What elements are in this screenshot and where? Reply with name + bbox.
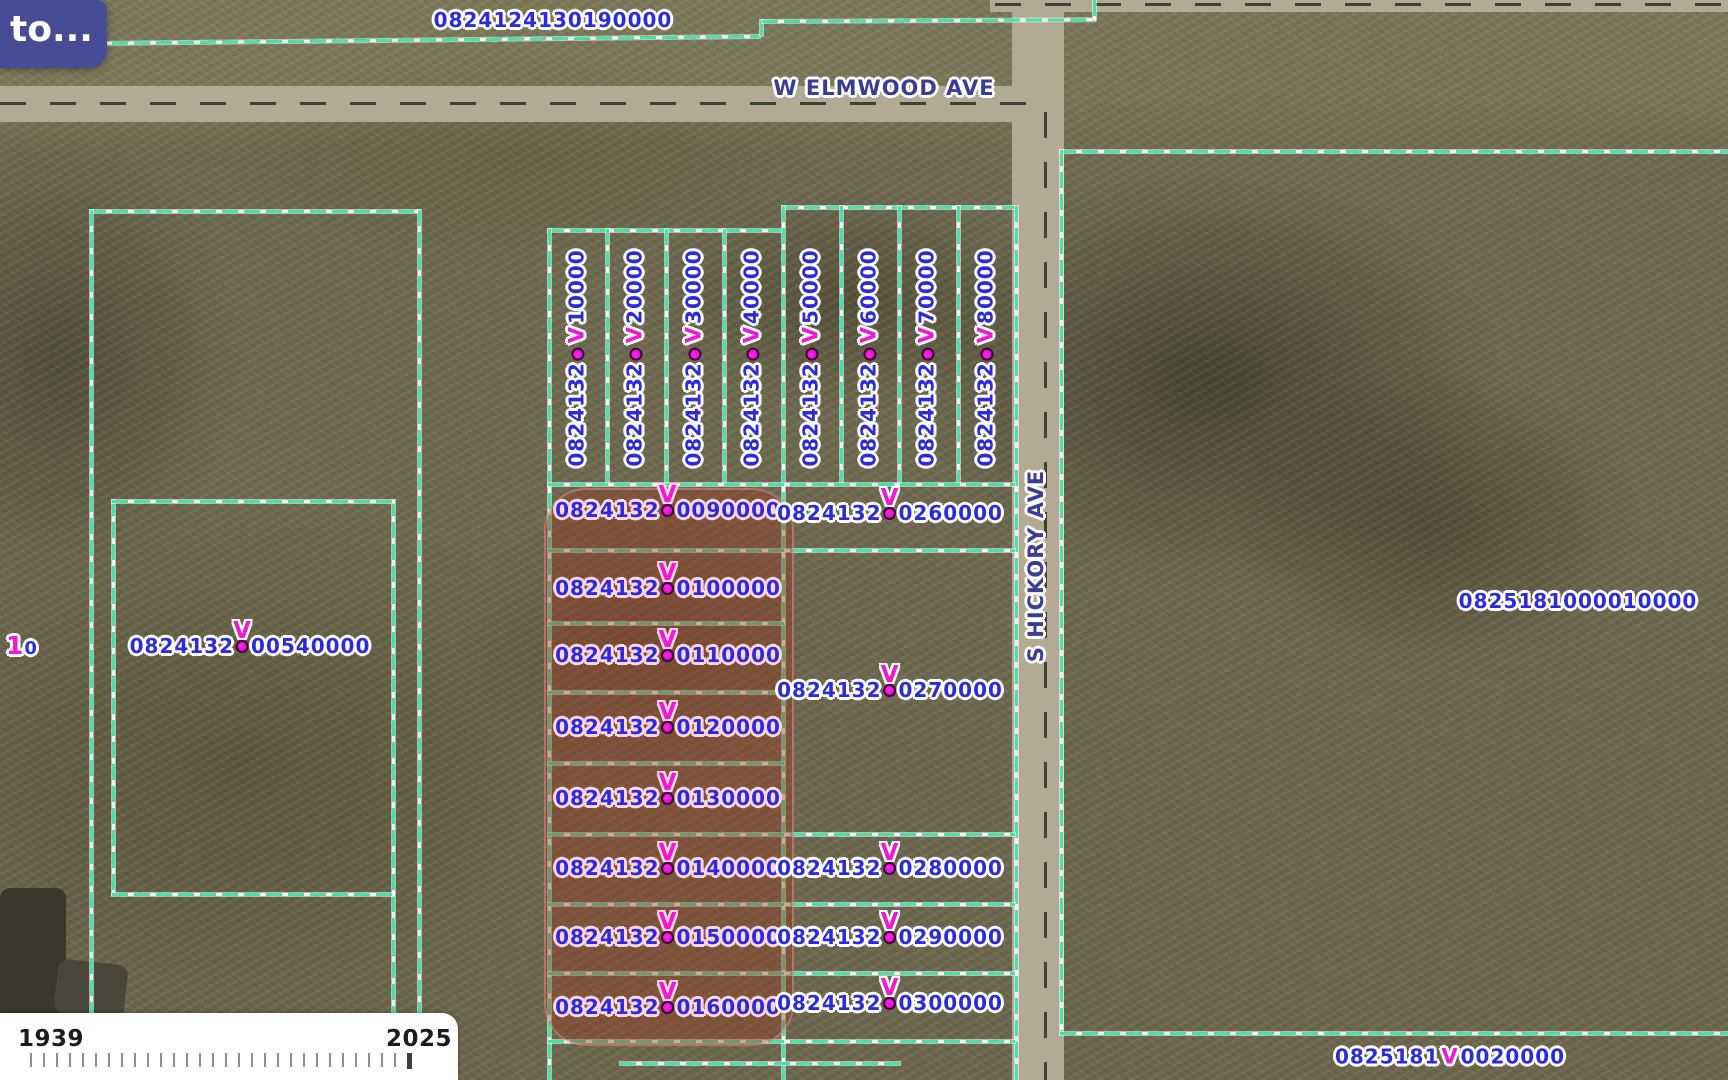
timeline-tick (394, 1053, 396, 1067)
parcel-dot-icon (236, 640, 249, 653)
parcel-point-marker: V (661, 648, 676, 663)
timeline-tick (355, 1053, 357, 1067)
parcel-boundary-line (1060, 150, 1728, 153)
parcel-dot-icon (662, 582, 675, 595)
parcel-dot-icon (662, 1001, 675, 1014)
parcel-boundary-line (112, 500, 394, 503)
parcel-label-vertical: 0824132V70000 (915, 249, 938, 466)
timeline-tick (316, 1053, 318, 1067)
timeline-tick (56, 1053, 58, 1067)
timeline-tick (342, 1053, 344, 1067)
parcel-boundary-line (418, 210, 421, 1035)
parcel-dot-icon (805, 347, 818, 360)
vacant-marker-icon: V (681, 326, 705, 343)
vacant-marker-icon: V (798, 326, 822, 343)
parcel-dot-icon (863, 347, 876, 360)
parcel-dot-icon (662, 504, 675, 517)
timeline-tick (290, 1053, 292, 1067)
timeline-tick (329, 1053, 331, 1067)
timeline-tick (212, 1053, 214, 1067)
parcel-label-vertical: 0824132V60000 (857, 249, 880, 466)
parcel-point-marker: V (883, 506, 898, 521)
road-centerline (0, 102, 1048, 105)
road-centerline (995, 3, 1728, 6)
parcel-label: 0824124130190000 (434, 9, 673, 31)
parcel-boundary-line (392, 500, 395, 1030)
parcel-point-marker: V (661, 1000, 676, 1015)
tooltip-button[interactable]: to... (0, 0, 107, 68)
parcel-label: 0824132V00540000 (130, 635, 371, 657)
parcel-point-marker: V (661, 720, 676, 735)
parcel-boundary-line (1060, 150, 1063, 1034)
parcel-label-vertical: 0824132V10000 (565, 249, 588, 466)
timeline-current-tick[interactable] (407, 1053, 412, 1069)
timeline-tick (173, 1053, 175, 1067)
timeline-tick (95, 1053, 97, 1067)
timeline-ticks[interactable] (30, 1053, 412, 1069)
timeline-tick (43, 1053, 45, 1067)
timeline-tick (30, 1053, 32, 1067)
parcel-point-marker: V (883, 861, 898, 876)
street-label-hickory: S HICKORY AVE (1024, 470, 1048, 662)
parcel-dot-icon (662, 862, 675, 875)
parcel-point-marker: V (883, 930, 898, 945)
vacant-marker-icon: V (1441, 1044, 1458, 1068)
parcel-dot-icon (884, 997, 897, 1010)
timeline-panel: 1939 2025 (0, 1013, 458, 1080)
parcel-point-marker: V (235, 639, 250, 654)
timeline-tick (199, 1053, 201, 1067)
parcel-boundary-line (1060, 1032, 1728, 1035)
timeline-tick (251, 1053, 253, 1067)
parcel-label: 0824132V0270000 (777, 679, 1003, 701)
timeline-tick (186, 1053, 188, 1067)
parcel-boundary-line (665, 229, 668, 483)
parcel-boundary-line (620, 1062, 900, 1065)
timeline-tick (69, 1053, 71, 1067)
parcel-dot-icon (662, 931, 675, 944)
parcel-point-marker: V (661, 503, 676, 518)
vacant-marker-icon: V (856, 326, 880, 343)
parcel-dot-icon (884, 862, 897, 875)
parcel-boundary-line (548, 483, 1015, 486)
parcel-dot-icon (746, 347, 759, 360)
parcel-dot-icon (921, 347, 934, 360)
parcel-label: 0824132V0260000 (777, 502, 1003, 524)
timeline-tick (238, 1053, 240, 1067)
parcel-label: 0824132V0280000 (777, 857, 1003, 879)
parcel-dot-icon (884, 931, 897, 944)
timeline-tick (160, 1053, 162, 1067)
parcel-dot-icon (980, 347, 993, 360)
parcel-boundary-line (957, 206, 960, 483)
parcel-boundary-line (90, 210, 420, 213)
parcel-label-highlighted: 0824132V0130000 (555, 787, 781, 809)
parcel-point-marker: V (661, 581, 676, 596)
timeline-tick (264, 1053, 266, 1067)
parcel-label-vertical: 0824132V80000 (974, 249, 997, 466)
parcel-point-marker: V (661, 930, 676, 945)
parcel-boundary-line (1015, 206, 1018, 1080)
aerial-texture (0, 0, 1728, 1080)
parcel-point-marker: V (883, 996, 898, 1011)
vacant-marker-icon: V (914, 326, 938, 343)
parcel-label-vertical: 0824132V20000 (623, 249, 646, 466)
vacant-marker-icon: V (739, 326, 763, 343)
parcel-label-highlighted: 0824132V0110000 (555, 644, 781, 666)
parcel-dot-icon (571, 347, 584, 360)
timeline-tick (368, 1053, 370, 1067)
parcel-point-marker: V (661, 861, 676, 876)
parcel-label-vertical: 0824132V50000 (799, 249, 822, 466)
parcel-point-marker: V (883, 683, 898, 698)
timeline-tick (108, 1053, 110, 1067)
vacant-marker-icon: V (622, 326, 646, 343)
parcel-label: 0825181000010000 (1459, 590, 1698, 612)
parcel-label-vertical: 0824132V40000 (740, 249, 763, 466)
timeline-tick (277, 1053, 279, 1067)
timeline-tick (82, 1053, 84, 1067)
parcel-label-highlighted: 0824132V0150000 (555, 926, 781, 948)
parcel-dot-icon (884, 507, 897, 520)
timeline-tick (225, 1053, 227, 1067)
timeline-tick (147, 1053, 149, 1067)
parcel-label-vertical: 0824132V30000 (682, 249, 705, 466)
parcel-dot-icon (884, 684, 897, 697)
street-label-elmwood: W ELMWOOD AVE (773, 76, 994, 100)
parcel-boundary-line (112, 500, 115, 895)
timeline-start-year: 1939 (18, 1026, 84, 1052)
parcel-label: 0824132V0290000 (777, 926, 1003, 948)
parcel-dot-icon (629, 347, 642, 360)
parcel-boundary-line (90, 210, 93, 1013)
parcel-label-partial: 10 (6, 632, 38, 660)
parcel-boundary-line (898, 206, 901, 483)
vacant-marker-icon: V (564, 326, 588, 343)
parcel-boundary-line (840, 206, 843, 483)
parcel-dot-icon (662, 721, 675, 734)
parcel-boundary-line (112, 893, 394, 896)
parcel-label-highlighted: 0824132V0140000 (555, 857, 781, 879)
timeline-tick (121, 1053, 123, 1067)
timeline-tick (303, 1053, 305, 1067)
parcel-label-highlighted: 0824132V0120000 (555, 716, 781, 738)
parcel-label-highlighted: 0824132V0090000 (555, 499, 781, 521)
timeline-end-year: 2025 (386, 1026, 452, 1052)
parcel-point-marker: V (661, 791, 676, 806)
parcel-dot-icon (662, 649, 675, 662)
road-top (990, 0, 1728, 12)
vacant-marker-icon: V (973, 326, 997, 343)
parcel-label-highlighted: 0824132V0160000 (555, 996, 781, 1018)
timeline-tick (134, 1053, 136, 1067)
parcel-label-highlighted: 0824132V0100000 (555, 577, 781, 599)
parcel-label: 0824132V0300000 (777, 992, 1003, 1014)
parcel-boundary-line (1093, 0, 1096, 20)
parcel-dot-icon (688, 347, 701, 360)
parcel-dot-icon (662, 792, 675, 805)
parcel-boundary-line (606, 229, 609, 483)
timeline-tick (381, 1053, 383, 1067)
parcel-label: 0825181V0020000 (1335, 1045, 1565, 1068)
parcel-boundary-line (723, 229, 726, 483)
map-canvas[interactable]: W ELMWOOD AVE S HICKORY AVE 082412413019… (0, 0, 1728, 1080)
